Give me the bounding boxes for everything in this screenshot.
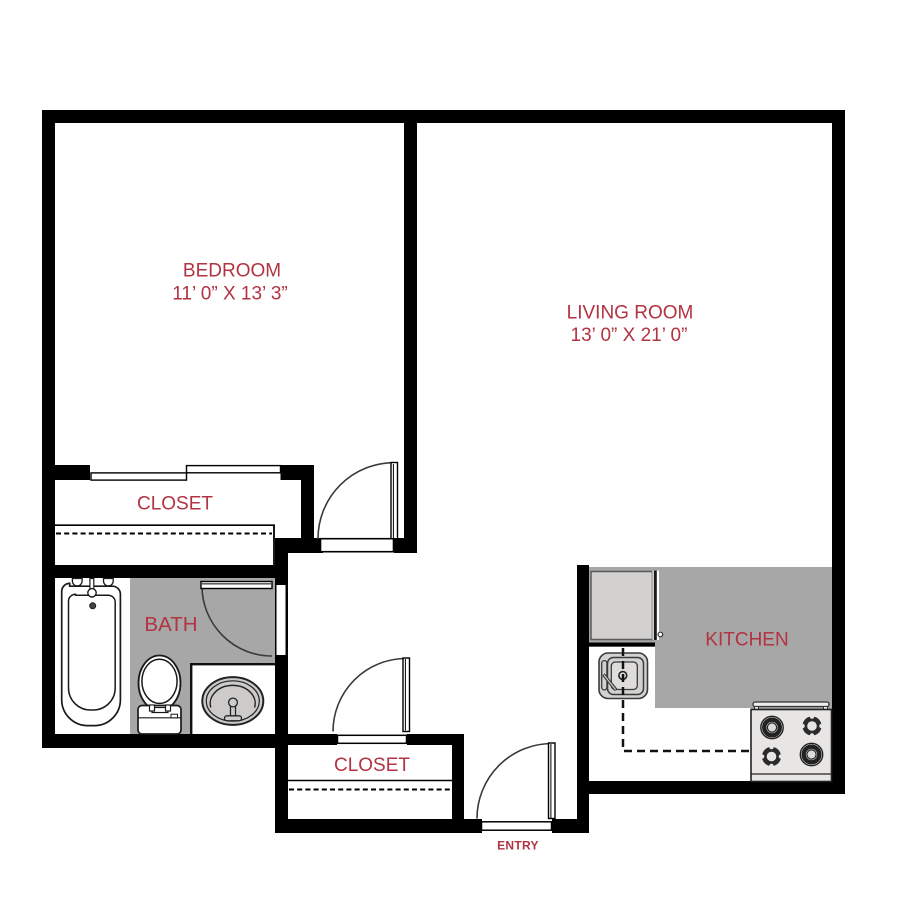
svg-text:CLOSET: CLOSET — [137, 494, 213, 515]
svg-text:ENTRY: ENTRY — [497, 838, 539, 852]
svg-text:CLOSET: CLOSET — [334, 755, 410, 776]
svg-text:BATH: BATH — [144, 613, 197, 636]
svg-text:11’ 0” X 13’ 3”: 11’ 0” X 13’ 3” — [172, 284, 287, 305]
svg-text:LIVING ROOM: LIVING ROOM — [567, 303, 694, 324]
svg-text:KITCHEN: KITCHEN — [705, 630, 788, 651]
svg-text:13’ 0” X 21’ 0”: 13’ 0” X 21’ 0” — [571, 325, 688, 346]
svg-text:BEDROOM: BEDROOM — [183, 261, 281, 282]
